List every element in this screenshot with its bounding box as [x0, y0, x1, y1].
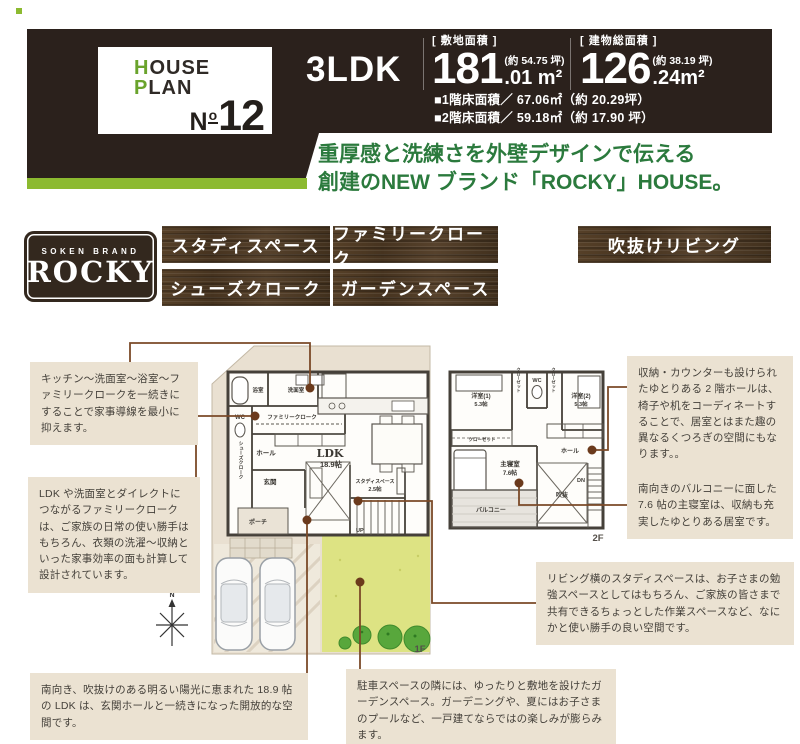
compass-icon: N: [156, 592, 188, 646]
master-bed: [454, 450, 486, 494]
room-label-ldk-size: 18.9帖: [320, 459, 343, 469]
room-label-closet-left: クローゼット: [516, 366, 522, 393]
floor-label-2f: 2F: [592, 533, 603, 544]
floor-plan-2f: 洋室(1) 5.3帖 洋室(2) 5.3帖 WC クローゼット クローゼット ク…: [450, 366, 604, 544]
callout-family-cloak: LDK や洗面室とダイレクトにつながるファミリークロークは、ご家族の日常の使い勝…: [28, 477, 200, 593]
room-label-room2-size: 5.3帖: [574, 400, 588, 408]
stairs-up-label: UP: [356, 528, 364, 534]
bathtub: [232, 377, 248, 404]
car-2: [260, 558, 295, 650]
room-label-master-size: 7.6帖: [503, 469, 517, 477]
room-label-bath: 浴室: [252, 386, 264, 394]
room-label-hall: ホール: [256, 449, 276, 457]
room-label-study-size: 2.5帖: [368, 485, 382, 493]
room-label-ldk: LDK: [317, 447, 344, 460]
callout-ldk: 南向き、吹抜けのある明るい陽光に恵まれた 18.9 帖の LDK は、玄関ホール…: [30, 673, 308, 740]
room-label-family-cloak: ファミリークローク: [267, 413, 317, 421]
toilet-2f: [532, 386, 542, 399]
room-label-void: 吹抜: [556, 491, 569, 499]
callout-study-space: リビング横のスタディスペースは、お子さまの勉強スペースとしてはもちろん、ご家族の…: [536, 562, 794, 645]
toilet: [235, 423, 245, 437]
kitchen-sink: [392, 401, 414, 411]
room-label-genkan: 玄関: [264, 477, 278, 486]
entrance-approach: [230, 538, 292, 558]
callout-garden-space: 駐車スペースの隣には、ゆったりと敷地を設けたガーデンスペース。ガーデニングや、夏…: [346, 669, 616, 744]
car-1: [216, 558, 252, 650]
room-label-hall-2f: ホール: [561, 448, 579, 455]
flyer-page: HOUSE PLAN N o 12 3LDK [ 敷地面積 ] 181 (約 5…: [0, 0, 800, 744]
room-label-wash: 洗面室: [288, 386, 305, 394]
room-label-wc-2f: WC: [532, 378, 541, 384]
room-label-room1-size: 5.3帖: [474, 400, 488, 408]
dining-table: [372, 416, 422, 472]
bed-room1: [456, 375, 502, 391]
callout-2f-hall: 収納・カウンターも設けられたゆとりある 2 階ホールは、椅子や机をコーディネート…: [627, 356, 793, 472]
room-label-room2: 洋室(2): [571, 392, 590, 400]
stairs-dn-label: DN: [577, 478, 585, 484]
room-label-master: 主寝室: [500, 459, 520, 468]
room-label-closet-right: クローゼット: [551, 366, 557, 393]
floor-label-1f: 1F: [414, 644, 425, 655]
callout-master-bedroom: 南向きのバルコニーに面した 7.6 帖の主寝室は、収納も充実したゆとりある居室で…: [627, 472, 793, 539]
room-label-study: スタディスペース: [355, 478, 394, 485]
callout-kitchen-flow: キッチン～洗面室～浴室～ファミリークロークを一続きにすることで家事導線を最小に抑…: [30, 362, 198, 445]
room-label-room1: 洋室(1): [471, 392, 490, 400]
room-label-porch: ポーチ: [249, 518, 267, 526]
room-label-balcony: バルコニー: [476, 506, 506, 514]
room-label-closet-row: クローゼット: [469, 436, 496, 443]
washbasin: [296, 375, 308, 385]
room-label-shoes-cloak: シューズクローク: [238, 441, 243, 481]
compass-north-label: N: [169, 592, 174, 599]
